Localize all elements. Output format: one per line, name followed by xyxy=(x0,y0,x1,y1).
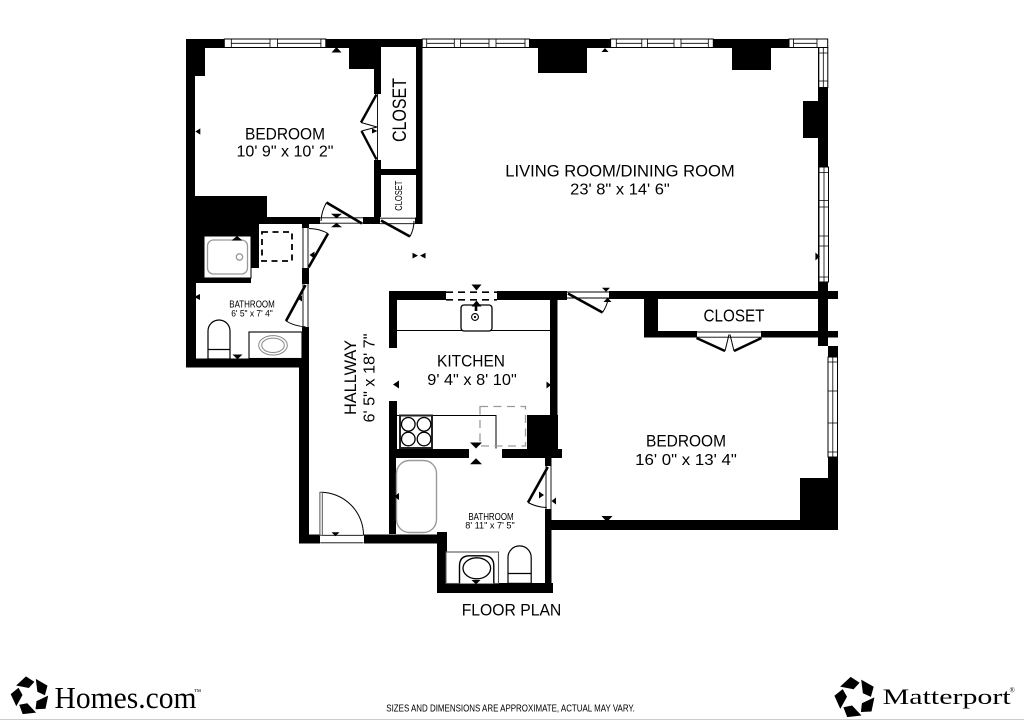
svg-text:KITCHEN: KITCHEN xyxy=(437,352,505,371)
svg-text:CLOSET: CLOSET xyxy=(390,78,411,142)
svg-text:8' 11" x 7' 5": 8' 11" x 7' 5" xyxy=(465,521,515,532)
svg-text:™: ™ xyxy=(194,687,202,696)
svg-text:LIVING ROOM/DINING ROOM: LIVING ROOM/DINING ROOM xyxy=(505,161,735,180)
svg-text:CLOSET: CLOSET xyxy=(394,181,405,211)
svg-text:10' 9" x 10' 2": 10' 9" x 10' 2" xyxy=(237,144,334,161)
svg-text:16' 0" x 13' 4": 16' 0" x 13' 4" xyxy=(635,452,737,469)
svg-text:Matterport: Matterport xyxy=(883,684,1012,709)
svg-text:FLOOR PLAN: FLOOR PLAN xyxy=(462,601,562,620)
svg-text:BEDROOM: BEDROOM xyxy=(646,432,726,451)
svg-text:BEDROOM: BEDROOM xyxy=(245,124,325,143)
svg-text:SIZES AND DIMENSIONS ARE APPRO: SIZES AND DIMENSIONS ARE APPROXIMATE, AC… xyxy=(386,704,635,715)
svg-text:6' 5" x 7' 4": 6' 5" x 7' 4" xyxy=(231,309,273,320)
svg-text:23' 8" x 14' 6": 23' 8" x 14' 6" xyxy=(570,182,670,199)
svg-text:6' 5" x 18' 7": 6' 5" x 18' 7" xyxy=(362,334,379,423)
svg-text:CLOSET: CLOSET xyxy=(704,306,765,326)
svg-text:®: ® xyxy=(1010,687,1016,695)
svg-text:Homes.com: Homes.com xyxy=(55,680,197,715)
svg-text:HALLWAY: HALLWAY xyxy=(341,340,360,415)
svg-text:9' 4" x 8' 10": 9' 4" x 8' 10" xyxy=(427,372,517,389)
